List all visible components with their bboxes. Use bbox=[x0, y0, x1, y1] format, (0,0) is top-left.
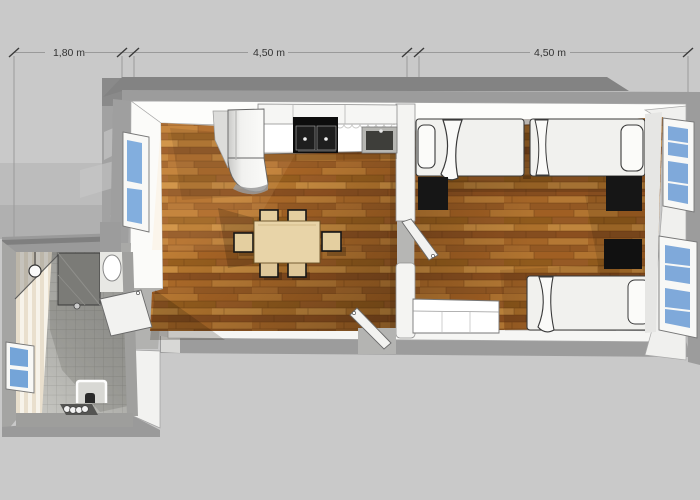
svg-text:4,50 m: 4,50 m bbox=[534, 47, 566, 59]
svg-text:1,80 m: 1,80 m bbox=[53, 47, 85, 59]
svg-text:4,50 m: 4,50 m bbox=[253, 47, 285, 59]
